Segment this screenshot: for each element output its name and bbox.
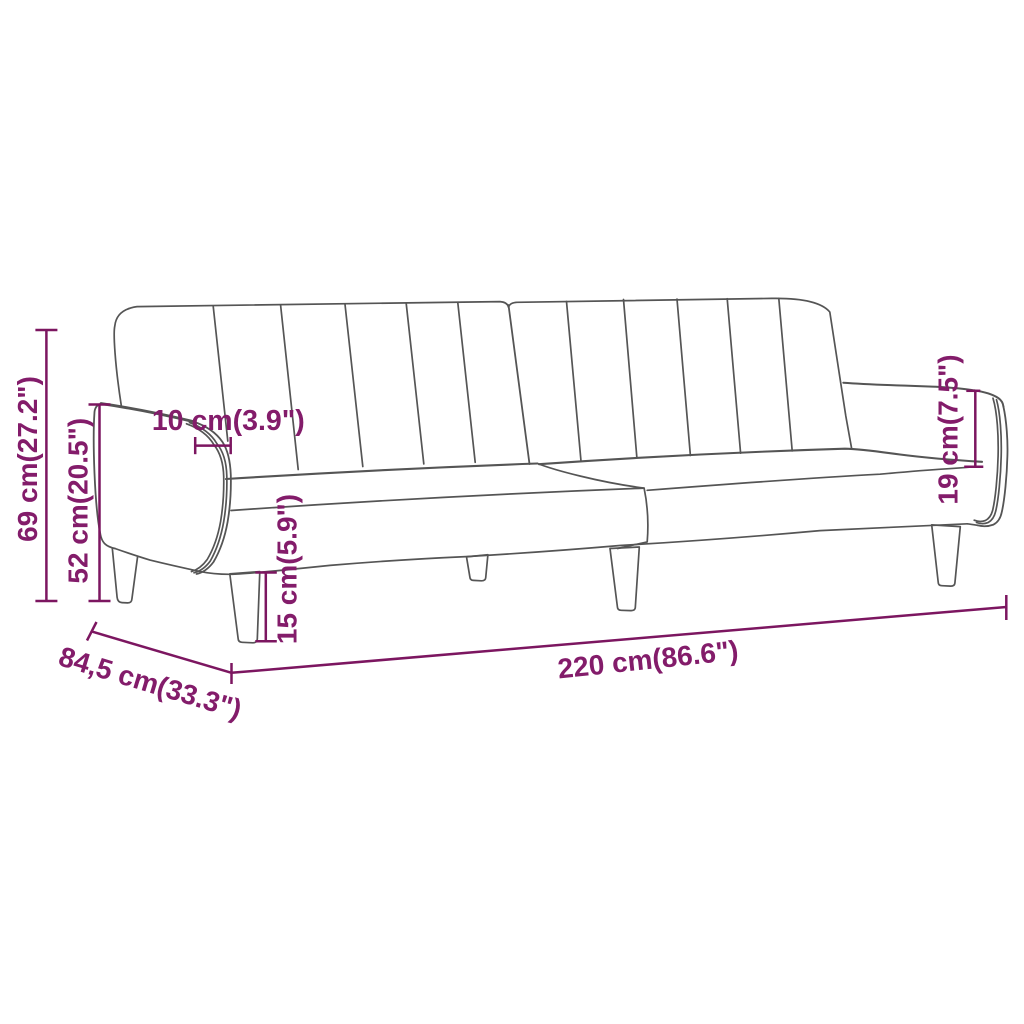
svg-text:19 cm(7.5"): 19 cm(7.5") <box>933 354 964 504</box>
svg-text:15 cm(5.9"): 15 cm(5.9") <box>272 494 303 644</box>
svg-text:69 cm(27.2"): 69 cm(27.2") <box>12 376 43 542</box>
svg-text:52 cm(20.5"): 52 cm(20.5") <box>62 418 93 584</box>
svg-text:10 cm(3.9"): 10 cm(3.9") <box>152 405 305 437</box>
